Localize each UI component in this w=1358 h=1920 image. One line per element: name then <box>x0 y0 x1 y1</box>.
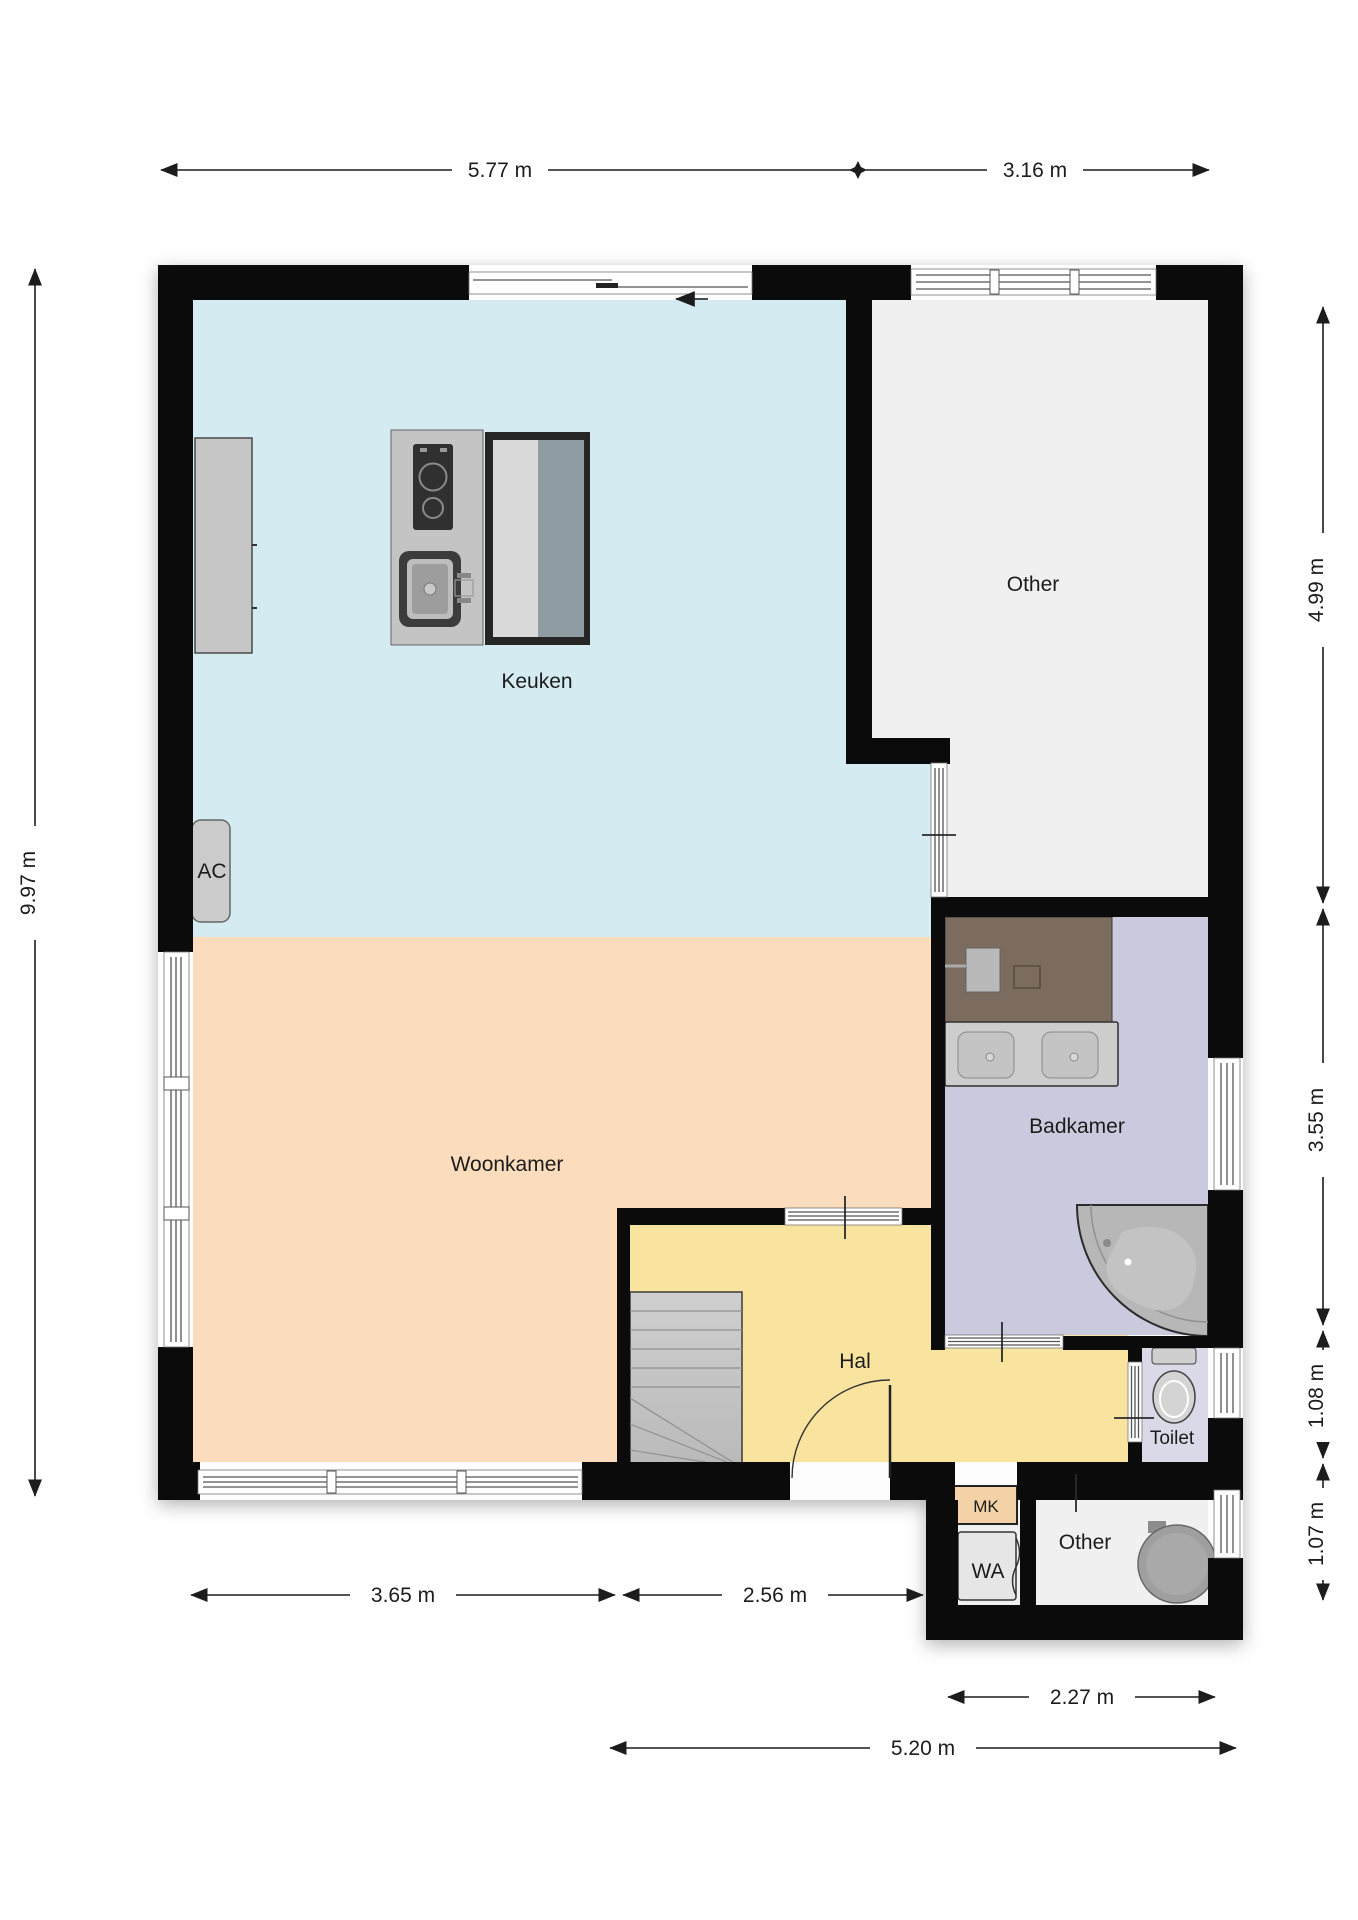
wall-right-b <box>1208 1190 1243 1348</box>
dim-label-bottom-3: 2.27 m <box>1050 1686 1114 1709</box>
label-mk: MK <box>973 1497 999 1516</box>
wall-hal-left <box>617 1208 630 1462</box>
drain-icon <box>986 1053 994 1061</box>
wall-top-b <box>752 265 911 300</box>
sink-drain-icon <box>424 583 436 595</box>
dim-label-bottom-2: 2.56 m <box>743 1584 807 1607</box>
window-mullion <box>990 270 999 294</box>
label-other-top: Other <box>1007 573 1060 596</box>
floorplan-page: Keuken Other Woonkamer Badkamer Hal Toil… <box>0 0 1358 1920</box>
counter-appliance <box>966 948 1000 992</box>
dim-label-right-3: 1.08 m <box>1305 1364 1328 1428</box>
label-badkamer: Badkamer <box>1029 1115 1125 1138</box>
window-mullion <box>1070 270 1079 294</box>
wall-keuken-other <box>846 300 872 738</box>
table-top-dark <box>538 440 584 637</box>
wall-ext-bottom <box>926 1605 1243 1640</box>
label-ac: AC <box>197 860 226 883</box>
wall-top-a <box>158 265 469 300</box>
floorplan-canvas: Keuken Other Woonkamer Badkamer Hal Toil… <box>0 0 1358 1920</box>
faucet-icon <box>457 598 471 603</box>
sliding-door-overlap <box>596 283 618 288</box>
bath-drain-icon <box>1125 1259 1132 1266</box>
dim-label-bottom-1: 3.65 m <box>371 1584 435 1607</box>
cooktop-knob-icon <box>420 448 427 452</box>
window-mullion <box>164 1207 189 1220</box>
label-wa: WA <box>971 1560 1004 1583</box>
window-mullion <box>457 1471 466 1493</box>
window-mullion <box>327 1471 336 1493</box>
dim-label-right-1: 4.99 m <box>1305 558 1328 622</box>
room-woonkamer-south <box>193 1208 617 1462</box>
wall-keuken-other-stub <box>846 738 950 764</box>
boiler-top <box>1146 1533 1208 1595</box>
wall-hal-toilet-b <box>1128 1442 1142 1462</box>
bath-jet-icon <box>1103 1239 1111 1247</box>
kitchen-tall-cabinet <box>195 438 252 653</box>
dim-label-left: 9.97 m <box>17 851 40 915</box>
wall-hal-toilet-a <box>1128 1348 1142 1362</box>
faucet-icon <box>457 573 471 578</box>
dim-label-right-2: 3.55 m <box>1305 1088 1328 1152</box>
wall-woonkamer-hal-a <box>617 1208 785 1225</box>
wall-bottom-d <box>1017 1462 1130 1500</box>
dim-label-top-2: 3.16 m <box>1003 159 1067 182</box>
drain-icon <box>1070 1053 1078 1061</box>
toilet-tank <box>1152 1348 1196 1364</box>
wall-other-badkamer <box>931 897 1208 917</box>
table-top-light <box>493 440 538 637</box>
dim-label-bottom-4: 5.20 m <box>891 1737 955 1760</box>
wall-bottom-b <box>582 1462 790 1500</box>
window-mullion <box>164 1077 189 1090</box>
dim-label-right-4: 1.07 m <box>1305 1502 1328 1566</box>
wall-woonkamer-badkamer <box>931 917 945 1350</box>
label-keuken: Keuken <box>501 670 572 693</box>
wall-bottom-c <box>890 1462 955 1500</box>
dim-star-icon <box>849 161 867 179</box>
dim-label-top-1: 5.77 m <box>468 159 532 182</box>
wall-left-b <box>158 1347 193 1500</box>
wall-ext-left <box>926 1500 958 1605</box>
wall-badkamer-hal <box>1063 1336 1128 1350</box>
cooktop-knob-icon <box>440 448 447 452</box>
label-hal: Hal <box>839 1350 871 1373</box>
stairs <box>630 1292 742 1470</box>
wall-ext-divider <box>1020 1500 1036 1605</box>
wall-left-a <box>158 265 193 952</box>
wall-right-a <box>1208 265 1243 1058</box>
label-toilet: Toilet <box>1150 1428 1195 1449</box>
room-keuken-east <box>846 740 931 937</box>
label-other-bottom: Other <box>1059 1531 1112 1554</box>
wall-woonkamer-hal-b <box>902 1208 945 1225</box>
label-woonkamer: Woonkamer <box>451 1153 564 1176</box>
wall-badkamer-toilet <box>1128 1336 1208 1348</box>
